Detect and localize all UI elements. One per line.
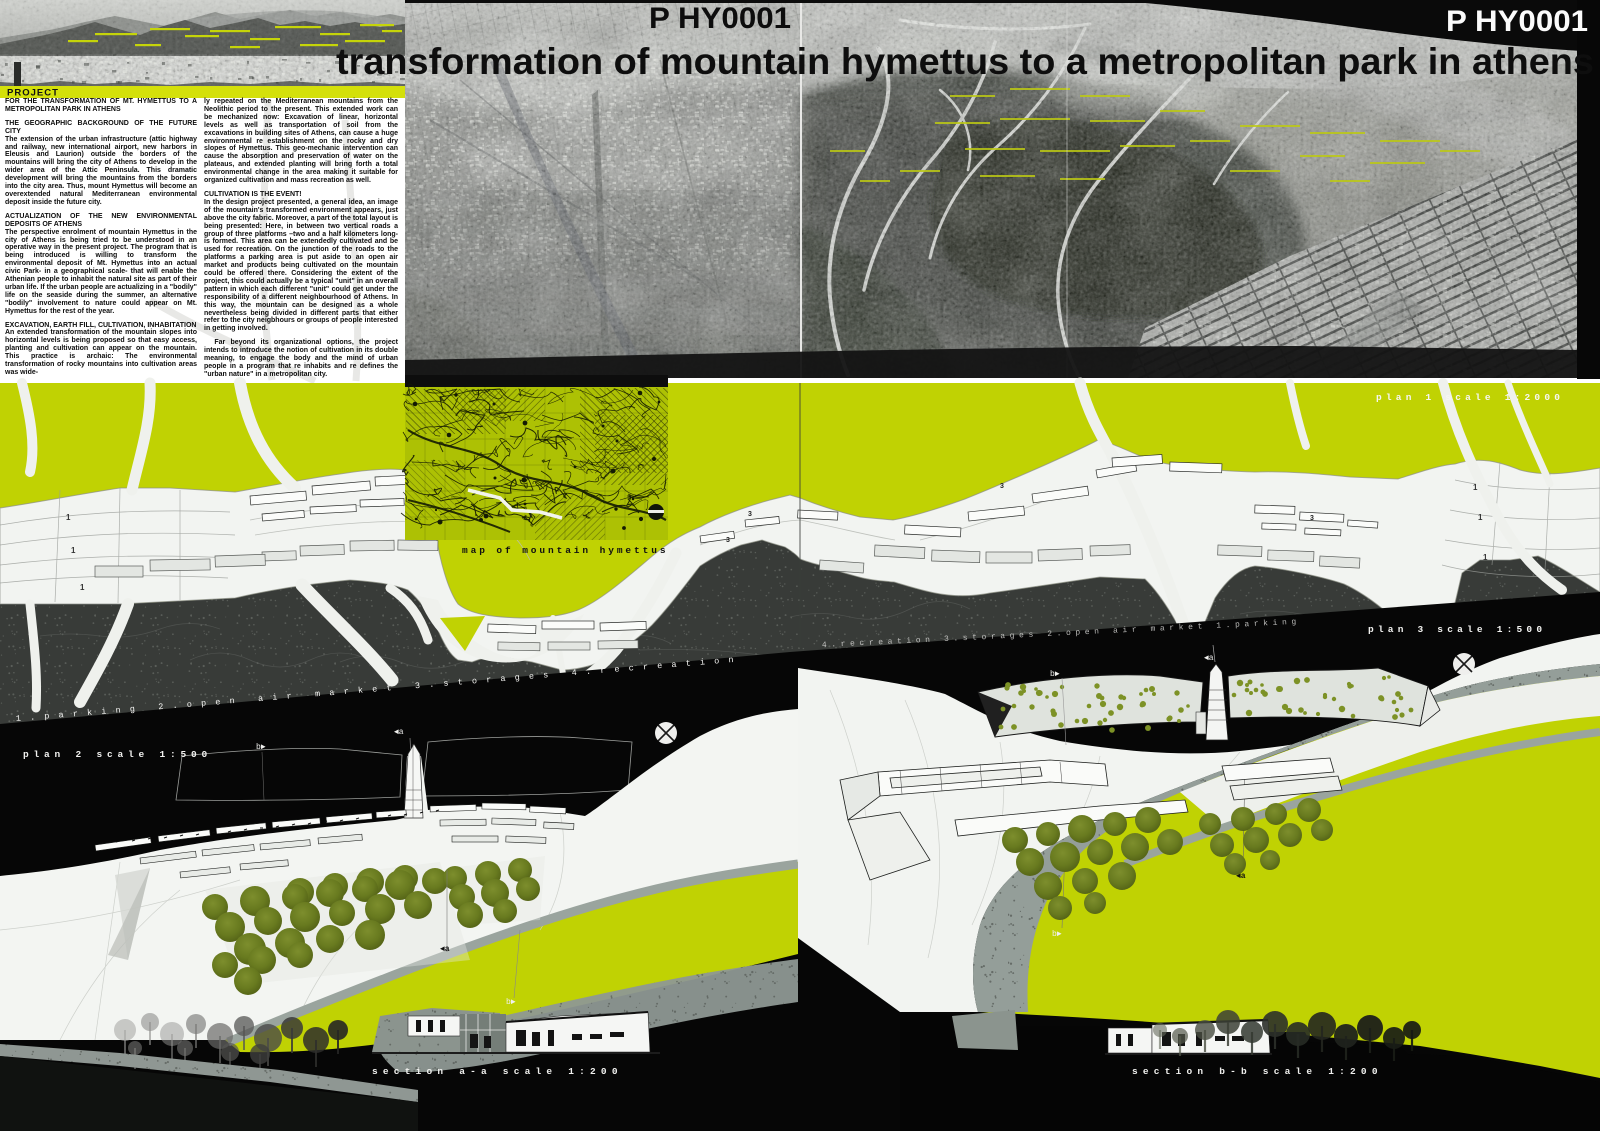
svg-text:1: 1 (1483, 553, 1488, 562)
svg-text:b►: b► (1050, 670, 1060, 679)
svg-text:◄a: ◄a (394, 728, 404, 737)
svg-text:◄a: ◄a (1204, 654, 1214, 663)
svg-text:3: 3 (726, 537, 730, 544)
svg-text:P HY0001: P HY0001 (649, 2, 791, 35)
svg-text:1: 1 (80, 583, 85, 592)
svg-text:map of mountain hymettus: map of mountain hymettus (462, 545, 668, 556)
svg-text:plan 1 scale 1:2000: plan 1 scale 1:2000 (1376, 392, 1564, 403)
svg-text:plan 3 scale 1:500: plan 3 scale 1:500 (1368, 624, 1546, 635)
svg-text:section b-b scale 1:200: section b-b scale 1:200 (1132, 1066, 1383, 1077)
svg-text:1: 1 (71, 546, 76, 555)
svg-text:transformation of mountain hym: transformation of mountain hymettus to a… (336, 41, 1594, 82)
svg-text:section a-a scale 1:200: section a-a scale 1:200 (372, 1066, 623, 1077)
svg-text:3: 3 (748, 511, 752, 518)
svg-text:b►: b► (1052, 930, 1062, 939)
svg-text:3: 3 (1000, 483, 1004, 490)
svg-text:PROJECT: PROJECT (7, 88, 59, 99)
svg-text:3: 3 (1310, 515, 1314, 522)
svg-text:b►: b► (256, 743, 266, 752)
svg-text:b►: b► (506, 998, 516, 1007)
svg-text:◄a: ◄a (440, 945, 450, 954)
svg-text:P HY0001: P HY0001 (1446, 5, 1588, 38)
svg-text:1: 1 (66, 513, 71, 522)
svg-text:1: 1 (1478, 513, 1483, 522)
svg-text:plan 2 scale 1:500: plan 2 scale 1:500 (23, 749, 212, 760)
